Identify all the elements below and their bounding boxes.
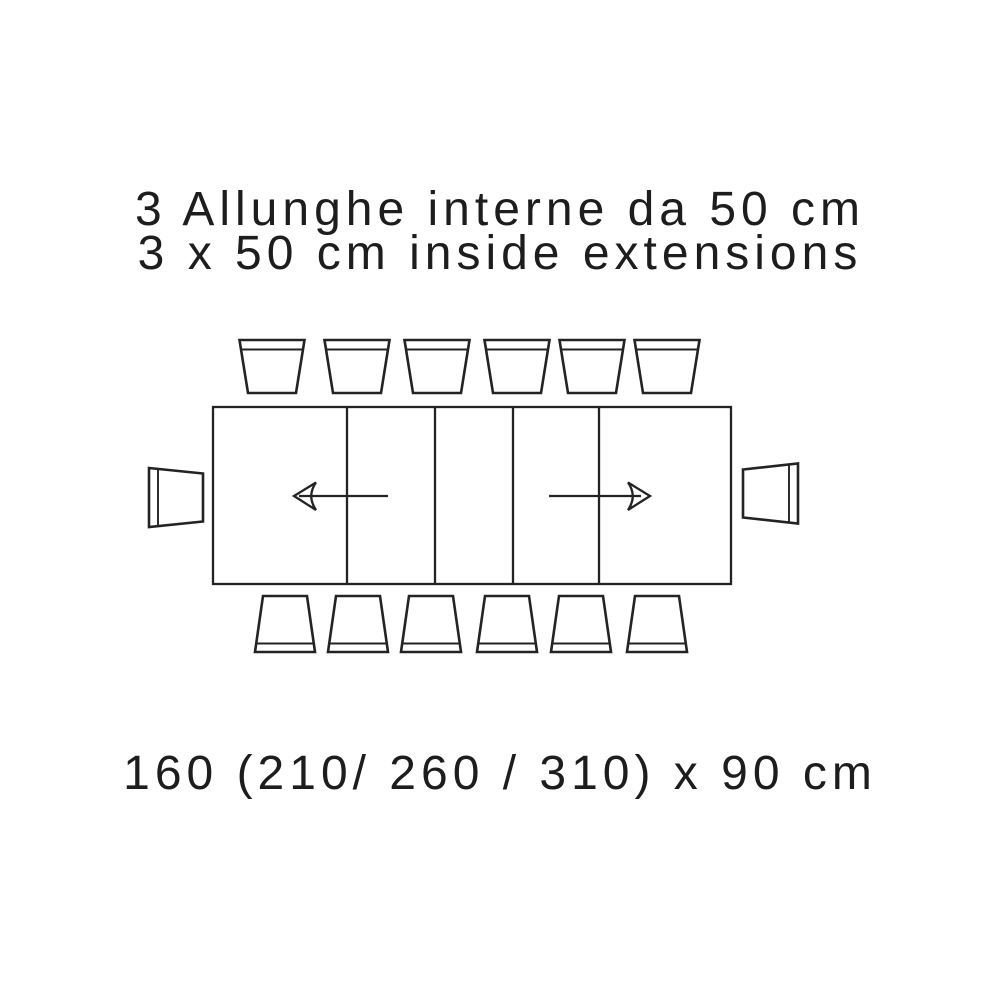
chair-bottom-5 — [551, 596, 611, 652]
chair-top-3-seat — [405, 340, 470, 393]
chair-bottom-2 — [328, 596, 388, 652]
chair-top-1 — [240, 340, 305, 393]
chair-top-4-seat — [485, 340, 550, 393]
chair-top-2-seat — [325, 340, 390, 393]
chair-right — [743, 464, 798, 524]
table-top — [213, 407, 731, 584]
chair-left — [149, 468, 203, 527]
dimension-label: 160 (210/ 260 / 310) x 90 cm — [0, 746, 1000, 801]
extend-arrow-left — [294, 483, 388, 511]
chair-bottom-1 — [255, 596, 315, 652]
chair-bottom-6 — [627, 596, 687, 652]
chair-top-4 — [485, 340, 550, 393]
table-plan-svg — [0, 0, 1000, 1000]
chair-top-6-seat — [635, 340, 700, 393]
chair-bottom-4 — [477, 596, 537, 652]
chair-top-1-seat — [240, 340, 305, 393]
chair-top-5 — [560, 340, 625, 393]
chair-bottom-3 — [401, 596, 461, 652]
chair-top-5-seat — [560, 340, 625, 393]
product-dimension-diagram: 3 Allunghe interne da 50 cm 3 x 50 cm in… — [0, 0, 1000, 1000]
chair-top-6 — [635, 340, 700, 393]
table-outline — [213, 407, 731, 584]
chair-top-3 — [405, 340, 470, 393]
chair-top-2 — [325, 340, 390, 393]
